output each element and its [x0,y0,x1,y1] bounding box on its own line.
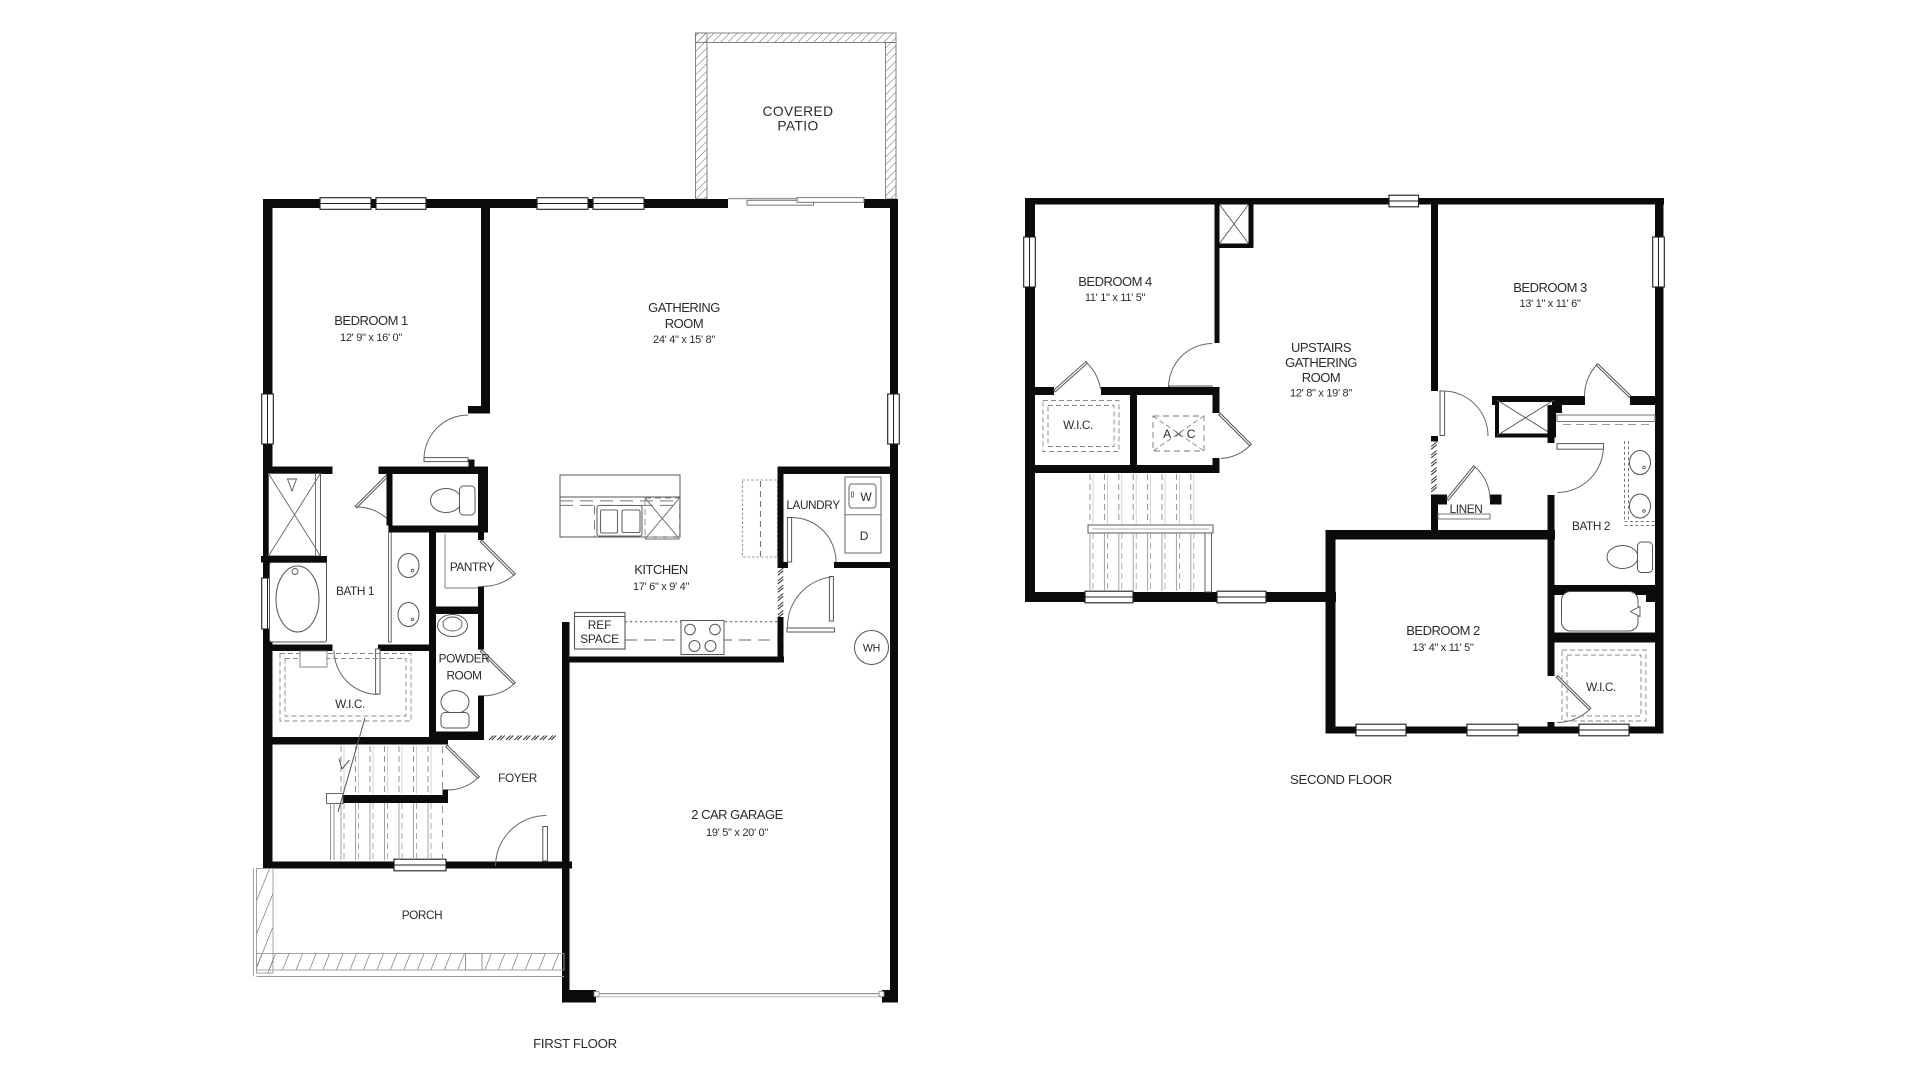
svg-text:SECOND FLOOR: SECOND FLOOR [1290,772,1392,787]
svg-text:2 CAR GARAGE: 2 CAR GARAGE [691,807,783,822]
svg-text:24' 4" x 15' 8": 24' 4" x 15' 8" [653,334,715,346]
svg-text:UPSTAIRS: UPSTAIRS [1291,340,1352,355]
svg-text:POWDER: POWDER [439,652,490,666]
svg-text:KITCHEN: KITCHEN [634,562,688,577]
svg-text:COVERED: COVERED [762,104,833,119]
svg-text:BEDROOM 3: BEDROOM 3 [1513,280,1587,295]
svg-text:PORCH: PORCH [402,908,443,922]
svg-text:FOYER: FOYER [498,771,537,785]
svg-text:GATHERING: GATHERING [1285,355,1357,370]
svg-text:ROOM: ROOM [446,669,481,683]
svg-text:W.I.C.: W.I.C. [1586,680,1616,694]
svg-text:13' 4" x 11' 5": 13' 4" x 11' 5" [1412,642,1474,654]
svg-text:REF: REF [588,618,611,632]
svg-text:BEDROOM 4: BEDROOM 4 [1078,274,1152,289]
svg-text:ROOM: ROOM [665,316,703,331]
svg-text:19' 5" x 20' 0": 19' 5" x 20' 0" [706,827,768,839]
svg-text:GATHERING: GATHERING [648,300,720,315]
svg-text:12' 8" x 19' 8": 12' 8" x 19' 8" [1290,388,1352,400]
svg-text:W: W [860,490,872,504]
svg-text:17' 6" x 9' 4": 17' 6" x 9' 4" [633,581,690,593]
svg-text:LINEN: LINEN [1450,502,1483,516]
svg-text:11' 1" x 11' 5": 11' 1" x 11' 5" [1085,292,1146,304]
svg-text:PANTRY: PANTRY [450,560,495,574]
svg-text:ROOM: ROOM [1302,370,1340,385]
svg-text:BEDROOM 2: BEDROOM 2 [1406,623,1480,638]
svg-text:BATH 1: BATH 1 [336,584,374,598]
svg-text:BEDROOM 1: BEDROOM 1 [334,313,408,328]
svg-text:LAUNDRY: LAUNDRY [786,498,840,512]
svg-text:D: D [860,529,869,543]
svg-text:A: A [1163,427,1171,441]
svg-text:W.I.C.: W.I.C. [1063,418,1093,432]
svg-text:SPACE: SPACE [580,632,619,646]
svg-text:FIRST FLOOR: FIRST FLOOR [533,1036,617,1051]
svg-text:12' 9" x 16' 0": 12' 9" x 16' 0" [340,332,402,344]
svg-text:13' 1" x 11' 6": 13' 1" x 11' 6" [1519,298,1581,310]
svg-text:WH: WH [863,643,880,655]
svg-text:BATH 2: BATH 2 [1572,519,1610,533]
svg-text:W.I.C.: W.I.C. [335,697,365,711]
svg-text:C: C [1187,427,1196,441]
svg-text:PATIO: PATIO [777,119,818,134]
